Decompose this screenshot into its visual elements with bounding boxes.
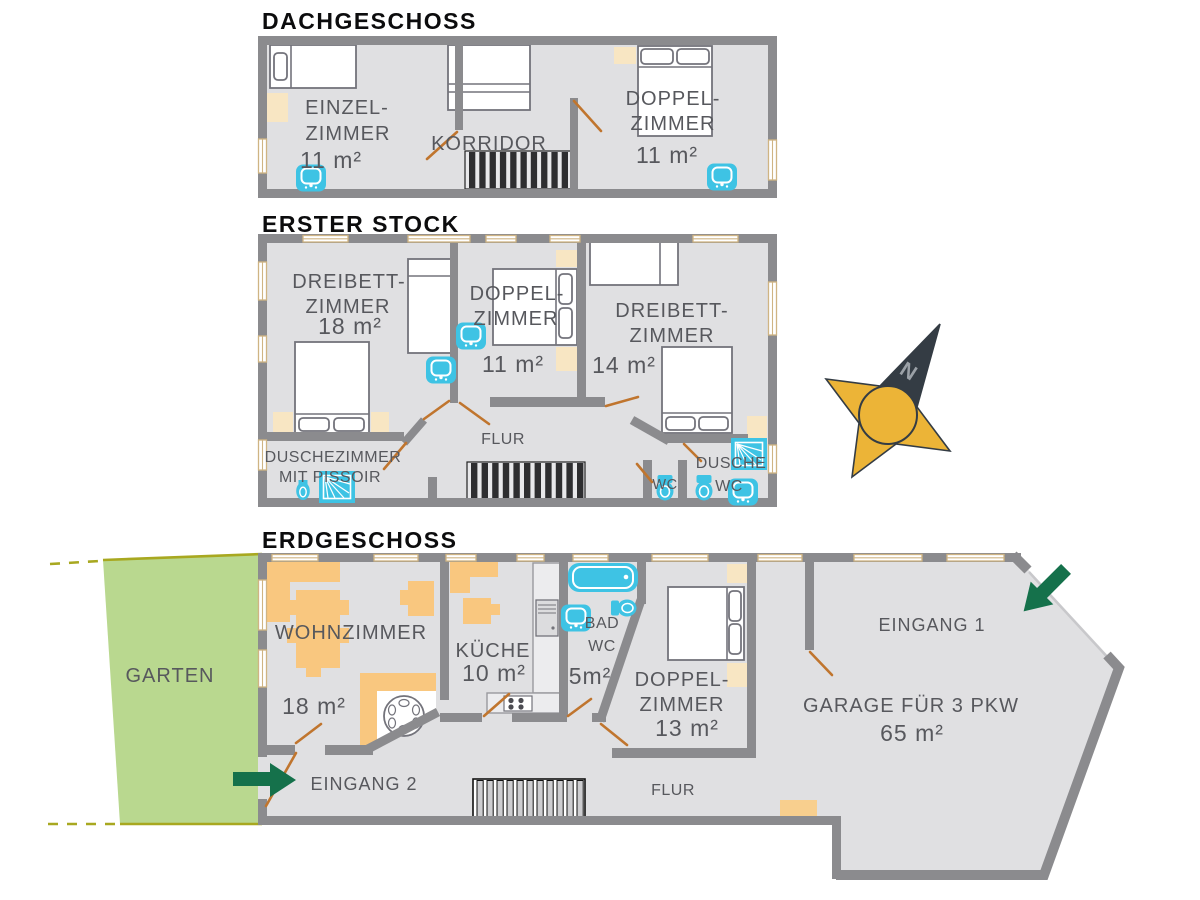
double-bed: [493, 269, 577, 345]
stove-icon: [504, 696, 532, 711]
room-label: FLUR: [651, 782, 695, 799]
area-label: 14 m²: [592, 352, 656, 378]
nightstand: [747, 416, 767, 438]
floorplan-drawing: DACHGESCHOSS: [0, 0, 1200, 900]
room-label: GARTEN: [126, 665, 215, 687]
fridge-icon: [536, 600, 558, 636]
floor-dachgeschoss: DACHGESCHOSS: [258, 8, 777, 198]
entrance1-label: EINGANG 1: [878, 615, 985, 635]
room-label: ZIMMER: [474, 308, 559, 330]
room-label: EINZEL-: [305, 97, 389, 119]
erdgeschoss-title: ERDGESCHOSS: [262, 527, 457, 553]
sink-icon: [426, 357, 456, 384]
room-label: BAD: [585, 615, 619, 632]
room-label: GARAGE FÜR 3 PKW: [803, 695, 1019, 717]
room-label: KORRIDOR: [431, 133, 547, 155]
toilet-icon: [611, 600, 637, 617]
nightstand: [727, 663, 747, 687]
floor-erdgeschoss: ERDGESCHOSS: [48, 527, 1120, 879]
stairs-icon: [467, 462, 585, 504]
nightstand: [556, 250, 577, 267]
nightstand: [727, 564, 747, 583]
area-label: 65 m²: [880, 720, 944, 746]
single-bed: [408, 259, 452, 353]
room-label: ZIMMER: [640, 694, 725, 716]
stairs-icon: [473, 779, 585, 818]
dresser: [614, 47, 636, 64]
stairs-icon: [465, 151, 572, 189]
area-label: 5m²: [569, 663, 612, 689]
nightstand: [556, 347, 578, 371]
room-label: DREIBETT-: [615, 300, 728, 322]
dresser: [267, 93, 288, 122]
room-label: WC: [715, 478, 743, 495]
area-label: 11 m²: [482, 351, 544, 377]
floorplan-page: DACHGESCHOSS: [0, 0, 1200, 900]
room-label: DOPPEL-: [626, 88, 721, 110]
room-label: WC: [652, 477, 677, 493]
room-label: DUSCHEZIMMER: [265, 449, 402, 466]
room-label: MIT PISSOIR: [279, 469, 381, 486]
bathtub-icon: [568, 563, 638, 592]
compass-center: [859, 386, 917, 444]
room-label: WOHNZIMMER: [275, 622, 427, 644]
room-label: ZIMMER: [631, 113, 716, 135]
single-bed: [270, 45, 356, 88]
floor-erster-stock: ERSTER STOCK: [258, 211, 777, 507]
area-label: 11 m²: [300, 147, 362, 173]
area-label: 18 m²: [282, 693, 346, 719]
room-label: WC: [588, 638, 616, 655]
room-label: ZIMMER: [306, 123, 391, 145]
room-label: DOPPEL-: [470, 283, 565, 305]
sink-icon: [707, 164, 737, 191]
cabinet: [780, 800, 817, 816]
room-label: DOPPEL-: [635, 669, 730, 691]
boundary-dashed: [50, 561, 100, 564]
area-label: 11 m²: [636, 142, 698, 168]
double-bed: [668, 587, 744, 660]
double-bed: [295, 342, 369, 434]
room-label: FLUR: [481, 431, 525, 448]
dachgeschoss-title: DACHGESCHOSS: [262, 8, 477, 34]
entrance2-label: EINGANG 2: [310, 774, 417, 794]
double-bed: [662, 347, 732, 433]
area-label: 10 m²: [462, 660, 526, 686]
compass-rose: N: [826, 324, 950, 477]
garden: [48, 554, 262, 824]
toilet-icon: [696, 475, 713, 501]
area-label: 13 m²: [655, 715, 719, 741]
room-label: KÜCHE: [455, 640, 530, 662]
area-label: 18 m²: [318, 313, 382, 339]
single-bed: [590, 241, 678, 285]
room-label: ZIMMER: [630, 325, 715, 347]
room-label: DREIBETT-: [292, 271, 405, 293]
erster-stock-title: ERSTER STOCK: [262, 211, 460, 237]
room-label: DUSCHE: [696, 455, 767, 472]
